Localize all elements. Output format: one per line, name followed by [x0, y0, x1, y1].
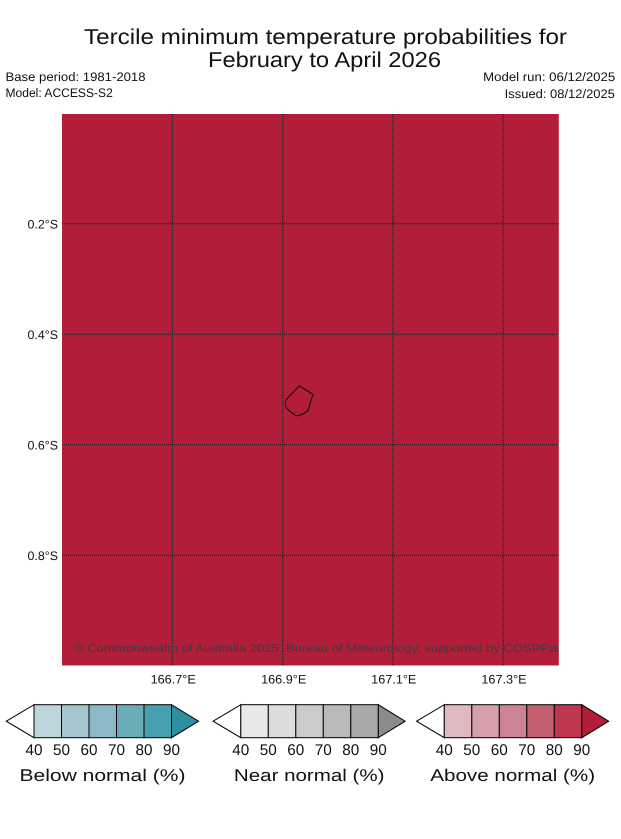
svg-text:0.8°S: 0.8°S [28, 549, 59, 563]
svg-text:Near normal (%): Near normal (%) [234, 766, 385, 785]
svg-text:90: 90 [163, 742, 180, 759]
svg-text:60: 60 [287, 742, 304, 759]
svg-text:0.4°S: 0.4°S [28, 328, 59, 342]
svg-text:70: 70 [108, 742, 125, 759]
svg-text:Tercile minimum temperature pr: Tercile minimum temperature probabilitie… [84, 25, 567, 49]
svg-text:167.3°E: 167.3°E [481, 673, 526, 687]
svg-text:Below normal (%): Below normal (%) [20, 766, 186, 785]
svg-text:60: 60 [81, 742, 98, 759]
svg-text:80: 80 [342, 742, 359, 759]
svg-text:Model: ACCESS-S2: Model: ACCESS-S2 [6, 86, 113, 100]
svg-text:0.6°S: 0.6°S [28, 438, 59, 452]
svg-text:60: 60 [491, 742, 508, 759]
svg-text:80: 80 [546, 742, 563, 759]
svg-text:0.2°S: 0.2°S [28, 217, 59, 231]
svg-text:166.7°E: 166.7°E [151, 673, 196, 687]
svg-text:166.9°E: 166.9°E [261, 673, 306, 687]
svg-text:70: 70 [518, 742, 535, 759]
svg-text:90: 90 [370, 742, 387, 759]
svg-text:© Commonwealth of Australia 20: © Commonwealth of Australia 2025, Bureau… [74, 643, 563, 655]
svg-text:70: 70 [315, 742, 332, 759]
svg-text:80: 80 [136, 742, 153, 759]
svg-text:50: 50 [53, 742, 70, 759]
svg-text:167.1°E: 167.1°E [371, 673, 416, 687]
svg-text:Base period: 1981-2018: Base period: 1981-2018 [6, 70, 146, 84]
svg-text:Model run: 06/12/2025: Model run: 06/12/2025 [483, 70, 615, 84]
svg-text:February to April 2026: February to April 2026 [208, 48, 441, 72]
svg-text:50: 50 [463, 742, 480, 759]
svg-text:50: 50 [260, 742, 277, 759]
svg-text:40: 40 [26, 742, 43, 759]
svg-text:Above normal (%): Above normal (%) [430, 766, 595, 785]
svg-text:40: 40 [436, 742, 453, 759]
svg-text:40: 40 [232, 742, 249, 759]
svg-text:Issued: 08/12/2025: Issued: 08/12/2025 [505, 87, 615, 101]
svg-text:90: 90 [573, 742, 590, 759]
